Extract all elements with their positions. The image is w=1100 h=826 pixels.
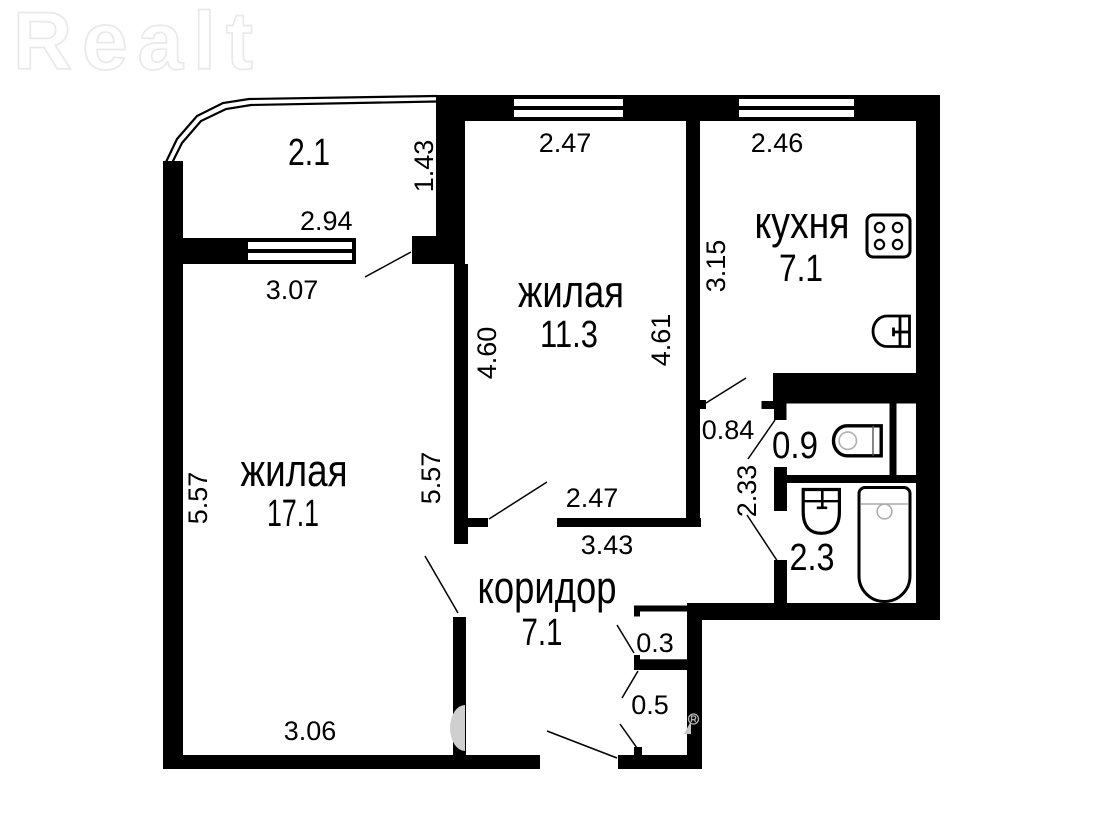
svg-text:жилая: жилая <box>518 266 624 317</box>
svg-text:2.94: 2.94 <box>300 206 353 236</box>
svg-text:2.46: 2.46 <box>751 128 804 158</box>
svg-text:0.9: 0.9 <box>772 425 818 467</box>
svg-text:кухня: кухня <box>755 197 850 248</box>
svg-text:2.47: 2.47 <box>566 483 619 513</box>
svg-text:7.1: 7.1 <box>779 248 823 290</box>
svg-text:5.57: 5.57 <box>183 472 213 525</box>
svg-text:3.06: 3.06 <box>284 716 337 746</box>
svg-text:0.3: 0.3 <box>636 628 674 658</box>
svg-text:коридор: коридор <box>478 562 617 613</box>
svg-text:0.84: 0.84 <box>702 415 755 445</box>
svg-text:3.43: 3.43 <box>581 530 634 560</box>
svg-text:1.43: 1.43 <box>409 140 439 193</box>
svg-text:3.07: 3.07 <box>266 275 319 305</box>
svg-text:3.15: 3.15 <box>701 240 731 293</box>
svg-text:4.60: 4.60 <box>472 327 502 380</box>
svg-text:2.47: 2.47 <box>539 128 592 158</box>
svg-text:0.5: 0.5 <box>631 690 669 720</box>
svg-text:17.1: 17.1 <box>267 493 319 535</box>
svg-text:2.1: 2.1 <box>288 132 330 174</box>
svg-text:жилая: жилая <box>241 445 348 496</box>
svg-text:Realt: Realt <box>13 0 263 87</box>
svg-text:7.1: 7.1 <box>522 612 563 654</box>
svg-text:11.3: 11.3 <box>540 314 598 356</box>
svg-text:2.3: 2.3 <box>790 537 835 579</box>
svg-text:5.57: 5.57 <box>416 452 446 505</box>
svg-text:2.33: 2.33 <box>732 465 762 518</box>
svg-text:4.61: 4.61 <box>646 314 676 367</box>
